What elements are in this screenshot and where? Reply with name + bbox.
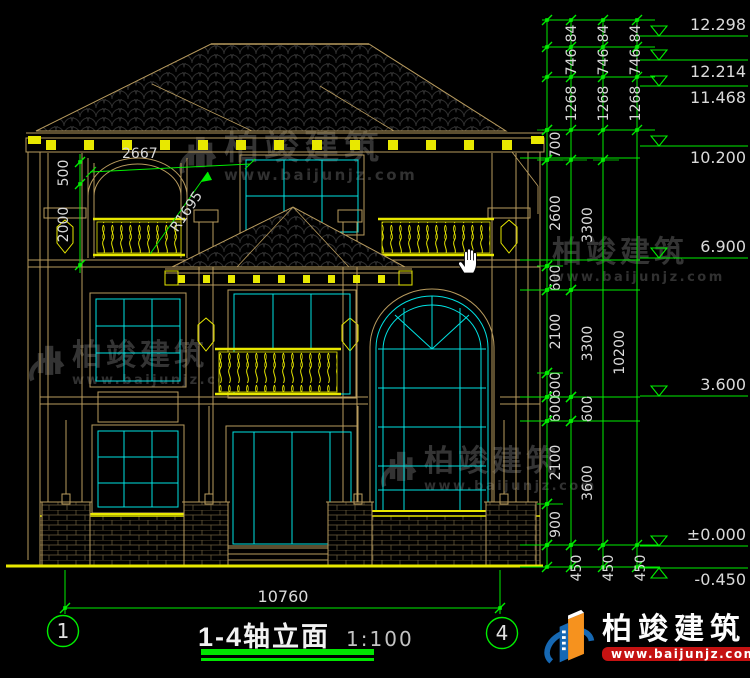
pendant-drops [62, 406, 508, 504]
svg-text:450: 450 [601, 555, 617, 582]
svg-text:2100: 2100 [548, 445, 564, 481]
svg-text:10200: 10200 [612, 330, 628, 375]
brand-name: 柏竣建筑 [602, 615, 746, 645]
arch-width-dim: 2667 [122, 146, 158, 162]
balcony-balustrade-right [378, 219, 494, 255]
svg-text:12.298: 12.298 [690, 15, 746, 34]
svg-text:746: 746 [564, 49, 580, 76]
porch-roof [165, 207, 412, 285]
main-roof [36, 44, 538, 214]
svg-text:6.900: 6.900 [700, 237, 746, 256]
axis-bubble-4: 4 [496, 621, 509, 645]
brand-url: www.baijunjz.com [602, 647, 750, 661]
svg-text:-0.450: -0.450 [694, 570, 746, 589]
svg-text:746: 746 [596, 49, 612, 76]
svg-text:900: 900 [548, 511, 564, 538]
svg-text:1268: 1268 [628, 86, 644, 122]
svg-text:±0.000: ±0.000 [687, 525, 746, 544]
svg-text:450: 450 [569, 555, 585, 582]
brand-logo: 柏竣建筑 www.baijunjz.com [540, 606, 750, 670]
brand-logo-icon [540, 606, 598, 670]
elevation-drawing: 8484847467467461268126812687002600600210… [0, 0, 750, 678]
svg-text:3600: 3600 [580, 465, 596, 501]
svg-text:700: 700 [548, 132, 564, 159]
svg-text:84: 84 [564, 25, 580, 43]
svg-text:84: 84 [628, 25, 644, 43]
svg-text:2100: 2100 [548, 314, 564, 350]
title-underline-thick [201, 649, 374, 655]
svg-text:84: 84 [596, 25, 612, 43]
cad-viewport: 柏竣建筑 www.baijunjz.com 柏竣建筑 www.baijunjz.… [0, 0, 750, 678]
svg-text:3300: 3300 [580, 326, 596, 362]
svg-text:3300: 3300 [580, 207, 596, 243]
house-structure [6, 44, 544, 566]
window-surround [92, 425, 184, 513]
svg-text:500: 500 [56, 160, 72, 187]
arched-stair-window [376, 296, 488, 510]
svg-text:3.600: 3.600 [700, 375, 746, 394]
first-floor-left-window [98, 431, 178, 507]
window-surround [90, 293, 186, 387]
second-floor-balcony-rail [215, 349, 341, 394]
svg-text:2000: 2000 [56, 207, 72, 243]
axis-bubble-1: 1 [57, 619, 70, 643]
svg-text:600: 600 [580, 396, 596, 423]
svg-text:12.214: 12.214 [690, 62, 746, 81]
svg-text:2600: 2600 [548, 195, 564, 231]
second-floor-left-window [96, 299, 180, 381]
drawing-scale: 1:100 [346, 627, 414, 651]
svg-text:10.200: 10.200 [690, 148, 746, 167]
svg-text:746: 746 [628, 49, 644, 76]
title-underline-thin [201, 658, 374, 661]
svg-text:11.468: 11.468 [690, 88, 746, 107]
svg-text:1268: 1268 [596, 86, 612, 122]
svg-text:10760: 10760 [258, 587, 309, 606]
svg-text:1268: 1268 [564, 86, 580, 122]
